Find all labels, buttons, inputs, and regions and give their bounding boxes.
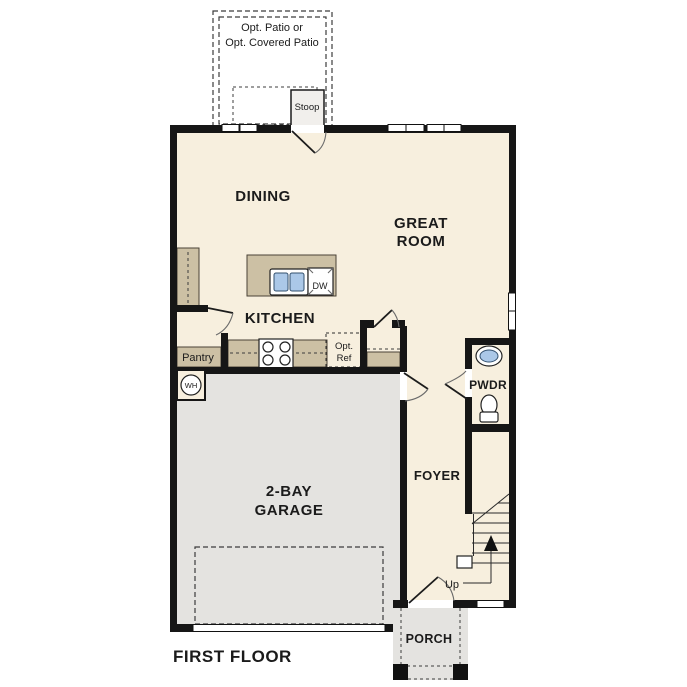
wall-closet-stub-left bbox=[360, 320, 374, 328]
window-dining-right bbox=[240, 125, 257, 132]
window-greatroom-1a bbox=[388, 125, 406, 132]
water-heater-label: WH bbox=[185, 381, 198, 390]
wall-powder-top bbox=[465, 338, 516, 345]
window-dining-left bbox=[222, 125, 239, 132]
porch-post-right bbox=[453, 664, 468, 680]
porch-post-left bbox=[393, 664, 408, 680]
toilet-tank bbox=[480, 412, 498, 422]
dishwasher-label: DW bbox=[313, 281, 328, 291]
porch-label: PORCH bbox=[406, 632, 453, 646]
burner-2 bbox=[280, 342, 290, 352]
wall-counter-stub bbox=[221, 333, 228, 367]
wall-left bbox=[170, 125, 177, 632]
burner-3 bbox=[263, 355, 273, 365]
burner-1 bbox=[263, 342, 273, 352]
wall-garage-right-upper bbox=[400, 326, 407, 372]
opt-ref-label-line1: Opt. bbox=[335, 341, 353, 352]
opt-ref-label-line2: Ref bbox=[337, 353, 352, 364]
great-room-label-line1: GREAT bbox=[394, 215, 448, 232]
dining-label: DINING bbox=[235, 188, 291, 205]
wall-powder-bottom bbox=[465, 424, 516, 432]
powder-label: PWDR bbox=[469, 378, 507, 392]
kitchen-sink-basin-right bbox=[290, 273, 304, 291]
window-front-wall bbox=[477, 601, 504, 608]
kitchen-sink-basin-left bbox=[274, 273, 288, 291]
floor-plan-canvas: Opt. Patio or Opt. Covered Patio Stoop D… bbox=[0, 0, 687, 687]
window-greatroom-2b bbox=[444, 125, 461, 132]
window-greatroom-2a bbox=[427, 125, 444, 132]
burner-4 bbox=[280, 355, 290, 365]
floor-plan-page: Opt. Patio or Opt. Covered Patio Stoop D… bbox=[0, 0, 687, 687]
great-room-label-line2: ROOM bbox=[397, 233, 446, 250]
garage-label-line1: 2-BAY bbox=[266, 483, 312, 500]
stair-bottom-step bbox=[457, 556, 472, 568]
coat-closet-shelf bbox=[367, 352, 400, 367]
opening-front-door bbox=[408, 600, 453, 608]
opening-stoop-door bbox=[291, 125, 324, 133]
patio-label-line2: Opt. Covered Patio bbox=[225, 37, 319, 49]
wall-stairs-left bbox=[465, 432, 472, 514]
window-right-wall-b bbox=[509, 311, 516, 330]
wall-pantry-stub bbox=[177, 305, 208, 312]
stoop-label: Stoop bbox=[295, 102, 320, 113]
garage-door-panel bbox=[193, 625, 385, 632]
wall-powder-left-upper bbox=[465, 338, 472, 369]
kitchen-label: KITCHEN bbox=[245, 310, 315, 327]
window-greatroom-1b bbox=[406, 125, 424, 132]
powder-sink-basin bbox=[480, 350, 498, 362]
opening-garage-entry bbox=[400, 372, 407, 400]
wall-right bbox=[509, 125, 516, 608]
patio-label-line1: Opt. Patio or bbox=[241, 22, 303, 34]
pantry-label: Pantry bbox=[182, 352, 214, 364]
window-right-wall-a bbox=[509, 293, 516, 311]
stairs-up-label: Up bbox=[445, 579, 459, 591]
foyer-label: FOYER bbox=[414, 468, 461, 483]
plan-title: FIRST FLOOR bbox=[173, 647, 292, 666]
garage-label-line2: GARAGE bbox=[255, 502, 324, 519]
wall-garage-right-lower bbox=[400, 400, 407, 600]
